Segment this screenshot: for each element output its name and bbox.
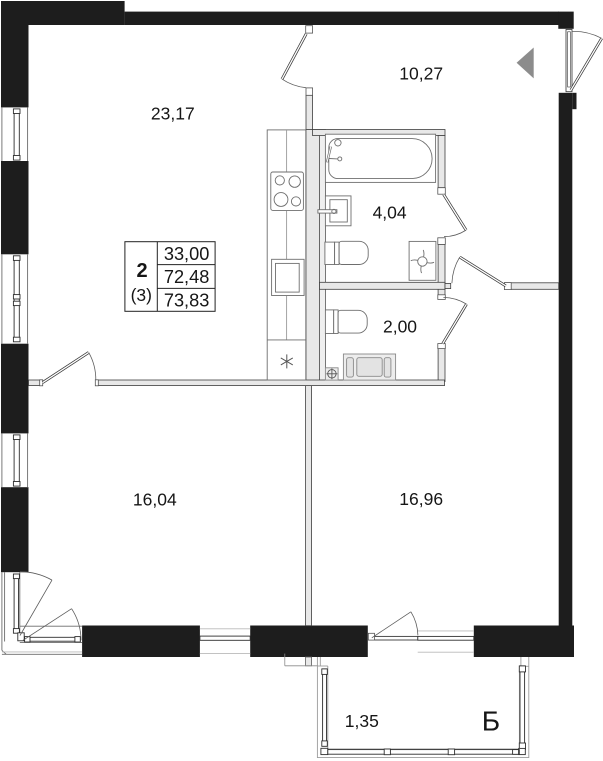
svg-text:1,35: 1,35 [345,711,379,731]
svg-text:16,96: 16,96 [399,489,443,509]
svg-text:2: 2 [136,260,147,282]
svg-text:2,00: 2,00 [383,317,417,337]
svg-text:33,00: 33,00 [164,244,210,264]
svg-text:Б: Б [482,705,500,736]
svg-text:23,17: 23,17 [151,104,195,124]
svg-text:72,48: 72,48 [164,267,210,287]
svg-text:(3): (3) [131,285,152,305]
svg-text:4,04: 4,04 [373,202,407,222]
svg-text:16,04: 16,04 [133,489,177,509]
svg-text:73,83: 73,83 [164,291,210,311]
svg-text:10,27: 10,27 [399,64,443,84]
